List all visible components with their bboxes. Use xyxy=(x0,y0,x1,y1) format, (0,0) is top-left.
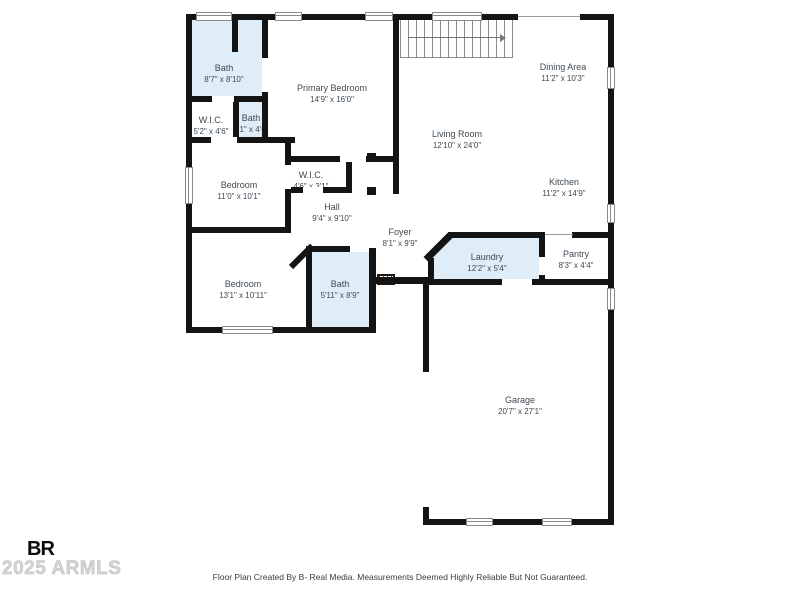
door-opening xyxy=(211,137,237,143)
window-symbol xyxy=(607,204,615,223)
open-edge-line xyxy=(518,16,580,17)
door-opening xyxy=(303,187,323,193)
room-label-primary-bedroom: Primary Bedroom 14'9" x 16'0" xyxy=(297,83,367,105)
floor-plan-page: Bath 8'7" x 8'10" W.I.C. 5'2" x 4'6" Bat… xyxy=(0,0,800,600)
door-opening xyxy=(539,257,545,275)
room-label-bedroom-2: Bedroom 13'1" x 10'11" xyxy=(219,279,267,301)
wall xyxy=(448,232,545,238)
window-symbol xyxy=(607,67,615,89)
wall xyxy=(369,277,430,284)
wall xyxy=(186,227,291,233)
wall xyxy=(608,14,614,285)
window-symbol xyxy=(185,167,193,204)
stairs-direction-arrow-icon xyxy=(500,34,506,42)
wall xyxy=(608,285,614,525)
wall xyxy=(393,14,399,160)
wall xyxy=(423,285,429,372)
door-opening xyxy=(285,165,291,189)
door-opening xyxy=(212,96,234,102)
window-symbol xyxy=(607,288,615,310)
room-label-foyer: Foyer 8'1" x 9'9" xyxy=(383,227,418,249)
door-opening xyxy=(502,279,532,285)
window-symbol xyxy=(365,12,393,21)
door-opening xyxy=(340,156,366,162)
room-label-garage: Garage 20'7" x 27'1" xyxy=(498,395,542,417)
room-label-hall: Hall 9'4" x 9'10" xyxy=(312,202,351,224)
wall xyxy=(423,519,614,525)
room-label-living-room: Living Room 12'10" x 24'0" xyxy=(432,129,482,151)
stairs-direction-line xyxy=(408,37,500,38)
wall xyxy=(572,232,614,238)
wall xyxy=(367,187,376,195)
room-label-bath-3: Bath 5'11" x 8'9" xyxy=(321,279,360,301)
room-label-pantry: Pantry 8'3" x 4'4" xyxy=(559,249,594,271)
room-label-bedroom-1: Bedroom 11'0" x 10'1" xyxy=(217,180,260,202)
wall xyxy=(367,153,376,161)
stairs-hatch xyxy=(400,20,513,58)
wall xyxy=(369,248,376,333)
floor-plan: Bath 8'7" x 8'10" W.I.C. 5'2" x 4'6" Bat… xyxy=(0,0,800,600)
wall xyxy=(393,160,399,194)
window-symbol xyxy=(466,518,493,526)
wall xyxy=(186,327,376,333)
window-symbol xyxy=(196,12,232,21)
footer-disclaimer: Floor Plan Created By B- Real Media. Mea… xyxy=(0,572,800,582)
open-edge-line xyxy=(545,234,573,235)
wall xyxy=(428,258,434,285)
window-symbol xyxy=(222,326,273,334)
window-symbol xyxy=(542,518,572,526)
wall xyxy=(233,96,239,143)
window-symbol xyxy=(432,12,482,21)
window-symbol xyxy=(275,12,302,21)
room-label-wic-primary: W.I.C. 5'2" x 4'6" xyxy=(194,115,229,137)
wall xyxy=(232,14,238,52)
room-label-dining-area: Dining Area 11'2" x 10'3" xyxy=(540,62,587,84)
wall xyxy=(186,137,295,143)
room-label-kitchen: Kitchen 11'2" x 14'9" xyxy=(542,177,585,199)
door-opening xyxy=(262,58,268,92)
room-label-laundry: Laundry 12'2" x 5'4" xyxy=(467,252,506,274)
room-label-bath-primary: Bath 8'7" x 8'10" xyxy=(204,63,243,85)
wall xyxy=(306,252,312,333)
